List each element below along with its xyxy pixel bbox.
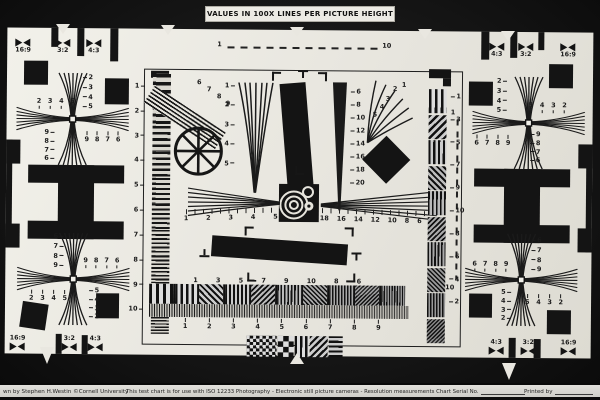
corner-mark — [272, 72, 281, 81]
wedge-cross-tl — [12, 67, 133, 172]
scale-label: 5 — [273, 214, 278, 221]
scale-label: 5 — [224, 160, 234, 167]
crop-bar — [538, 32, 544, 50]
scale-label: 4 — [51, 290, 56, 301]
scale-label: 4 — [251, 214, 256, 221]
aspect-marker-4-3-bl: 4:3 — [88, 336, 103, 351]
scale-label: 4 — [540, 102, 545, 113]
scale-label: 1 — [402, 82, 407, 89]
scale-label: 2 — [558, 294, 563, 305]
scale-label: 16 — [337, 216, 346, 223]
aspect-marker-16-9-tl: 16:9 — [15, 39, 31, 54]
scale-label: 14 — [354, 216, 363, 223]
crop-bar — [509, 338, 516, 358]
cross-scale: 5432 — [525, 294, 563, 305]
scale-label: 2 — [501, 315, 511, 322]
scale-label: 7 — [485, 135, 490, 146]
scale-label: 8 — [405, 218, 410, 225]
aspect-arrow-icon — [62, 343, 77, 351]
serial-number-line — [481, 389, 525, 395]
cross-scale: 6789 — [474, 135, 510, 146]
scale-label: 20 — [350, 180, 365, 187]
cross-scale: 2345 — [83, 74, 93, 110]
aspect-marker-4-3-tl: 4:3 — [86, 39, 101, 54]
scale-label: 1 — [183, 318, 188, 329]
cross-scale: 5432 — [89, 287, 99, 320]
scale-label: 2 — [207, 318, 212, 329]
cross-scale: 5432 — [497, 289, 511, 322]
crop-bar — [481, 32, 489, 60]
scale-label: 4 — [501, 298, 511, 305]
corner-mark — [295, 166, 304, 175]
scale-label: 3 — [83, 84, 93, 91]
aspect-marker-16-9-bl: 16:9 — [10, 335, 26, 350]
sweep-bottom-scale: 123456789 — [183, 318, 381, 331]
scale-label: 3 — [231, 318, 236, 329]
scale-label: 6 — [115, 257, 120, 268]
scale-label: 6 — [417, 218, 422, 225]
aspect-label: 3:2 — [57, 48, 68, 54]
cross-scale: 9876 — [530, 131, 540, 164]
scale-label: 16 — [350, 154, 365, 161]
scale-label: 6 — [474, 135, 479, 146]
crop-bar — [56, 334, 62, 354]
border-triangle-icon — [418, 29, 432, 39]
border-triangle-icon — [40, 347, 54, 364]
aspect-label: 4:3 — [90, 336, 101, 342]
aspect-arrow-icon — [88, 343, 103, 351]
scale-label: 6 — [304, 319, 309, 330]
scale-label: 9 — [53, 262, 63, 269]
scale-label: 4 — [59, 98, 64, 109]
t-mark — [199, 249, 209, 257]
crop-bar — [110, 28, 118, 61]
scale-label: 7 — [44, 146, 54, 153]
aspect-arrow-icon — [86, 39, 101, 47]
footer-strip: wn by Stephen H.Westin ©Cornell Universi… — [0, 383, 600, 397]
scale-label: 3 — [497, 88, 507, 95]
cross-scale: 2345 — [29, 290, 67, 301]
cross-scale: 2345 — [493, 78, 507, 114]
scale-label: 6 — [134, 207, 144, 214]
scale-label: 9 — [44, 129, 54, 136]
wagon-wheel-target — [172, 125, 224, 177]
scale-label: 7 — [207, 86, 212, 93]
aspect-label: 16:9 — [10, 335, 26, 341]
scale-label: 3 — [501, 306, 511, 313]
scale-label: 3 — [40, 290, 45, 301]
wedge-cross-tr — [468, 70, 589, 175]
border-triangle-icon — [56, 24, 70, 34]
cross-scale: 9876 — [84, 131, 120, 142]
aspect-arrow-icon — [10, 343, 25, 351]
aspect-label: 3:2 — [520, 52, 531, 58]
scale-label: 2 — [135, 107, 145, 114]
left-column-scale: 12345678910 — [125, 82, 145, 312]
title-plate: VALUES IN 100X LINES PER PICTURE HEIGHT — [205, 6, 395, 22]
scale-label: 8 — [493, 261, 498, 272]
scale-label: 10 — [388, 217, 397, 224]
scale-label: 4 — [224, 140, 234, 147]
aspect-label: 3:2 — [523, 340, 534, 346]
aspect-marker-3-2-bl: 3:2 — [62, 336, 77, 351]
column-cap — [443, 78, 451, 86]
aspect-arrow-icon — [518, 43, 533, 51]
scale-label: 8 — [133, 256, 143, 263]
scale-label: 2 — [497, 78, 507, 85]
scale-label: 5 — [134, 182, 144, 189]
scale-label: 3 — [451, 116, 466, 123]
printed-by-line — [555, 389, 593, 395]
scale-label: 5 — [497, 107, 507, 114]
scale-label: 8 — [94, 257, 99, 268]
wedge-scale: 12345 — [218, 82, 235, 166]
border-triangle-icon — [161, 25, 175, 35]
scale-label: 6 — [44, 155, 54, 162]
scale-label: 4 — [497, 97, 507, 104]
cross-scale: 6789 — [472, 261, 508, 272]
corner-mark — [318, 72, 327, 81]
border-triangle-icon — [501, 31, 515, 41]
scale-label: 9 — [504, 261, 509, 272]
scale-label: 2 — [206, 215, 211, 222]
corner-mark — [245, 227, 254, 236]
scale-label: 4 — [89, 296, 99, 303]
scale-label: 6 — [530, 158, 540, 165]
right-block-scale: 13579108642 — [449, 93, 465, 305]
scale-label: 5 — [525, 294, 530, 305]
corner-mark — [345, 227, 354, 236]
fan-burst — [363, 77, 418, 145]
scale-label: 7 — [531, 247, 541, 254]
scale-label: 18 — [350, 167, 365, 174]
column-cap — [429, 69, 451, 78]
aspect-arrow-icon — [16, 39, 31, 47]
scale-label: 5 — [529, 102, 534, 113]
scale-label: 6 — [472, 261, 477, 272]
scale-label: 3 — [386, 96, 391, 103]
aspect-marker-16-9-tr: 16:9 — [560, 43, 576, 58]
scale-label: 2 — [89, 314, 99, 321]
scale-label: 7 — [53, 243, 63, 250]
scale-label: 8 — [53, 253, 63, 260]
right-block-column — [427, 89, 447, 344]
scale-label: 3 — [551, 102, 556, 113]
aspect-arrow-icon — [561, 348, 576, 356]
scale-label: 2 — [29, 290, 34, 301]
scale-label: 2 — [225, 102, 235, 109]
scale-label: 9 — [83, 257, 88, 268]
t-mark — [298, 70, 308, 78]
scale-label: 7 — [104, 257, 109, 268]
scale-label: 8 — [95, 131, 100, 142]
scale-label: 4 — [255, 319, 260, 330]
scale-label: 4 — [380, 104, 385, 111]
t-mark — [351, 252, 361, 260]
aspect-label: 16:9 — [15, 48, 31, 54]
scale-label: 8 — [530, 140, 540, 147]
scale-label: 3 — [225, 121, 235, 128]
scale-label: 5 — [63, 290, 68, 301]
scale-label: 2 — [449, 299, 464, 306]
scale-label: 3 — [134, 132, 144, 139]
scale-label: 6 — [532, 237, 542, 244]
scale-label: 5 — [501, 289, 511, 296]
scale-label: 5 — [83, 104, 93, 111]
aspect-marker-16-9-br: 16:9 — [561, 340, 577, 355]
scale-label: 2 — [562, 102, 567, 113]
scale-label: 10 — [450, 207, 465, 214]
ruler-label: 10 — [382, 43, 391, 50]
scale-label: 1 — [225, 82, 235, 89]
scale-label: 9 — [506, 135, 511, 146]
cross-scale: 9876 — [40, 129, 54, 162]
scale-label: 9 — [133, 281, 143, 288]
scale-label: 5 — [450, 139, 465, 146]
scale-label: 6 — [116, 131, 121, 142]
aspect-label: 16:9 — [561, 340, 577, 346]
scale-label: 5 — [279, 319, 284, 330]
scale-label: 5 — [89, 287, 99, 294]
aspect-arrow-icon — [561, 43, 576, 51]
footer-usage: This test chart is for use with ISO 1223… — [126, 389, 479, 395]
scale-label: 8 — [352, 319, 357, 330]
scale-label: 1 — [451, 93, 466, 100]
burst-band — [149, 284, 409, 306]
chart-title: VALUES IN 100X LINES PER PICTURE HEIGHT — [207, 10, 393, 18]
aspect-label: 4:3 — [491, 52, 502, 58]
scale-label: 7 — [328, 319, 333, 330]
aspect-label: 4:3 — [88, 48, 99, 54]
crop-bar — [82, 335, 88, 354]
scale-label: 6 — [54, 233, 64, 240]
scale-label: 8 — [531, 257, 541, 264]
aspect-marker-3-2-tr: 3:2 — [518, 43, 533, 58]
scale-label: 8 — [495, 135, 500, 146]
aspect-arrow-icon — [489, 43, 504, 51]
scale-label: 9 — [530, 131, 540, 138]
scale-label: 6 — [449, 253, 464, 260]
cross-scale: 6789 — [531, 237, 541, 273]
scale-label: 10 — [128, 306, 143, 313]
cross-scale: 5432 — [529, 102, 567, 113]
aspect-arrow-icon — [489, 347, 504, 355]
scale-label: 2 — [37, 98, 42, 109]
scale-label: 1 — [184, 215, 189, 222]
scale-label: 9 — [376, 320, 381, 331]
wedge-cross-br — [461, 227, 582, 332]
border-triangle-icon — [502, 363, 516, 380]
aspect-label: 16:9 — [560, 52, 576, 58]
scale-label: 5 — [70, 98, 75, 109]
dashed-ruler-top — [227, 46, 379, 49]
footer-printed-by: Printed by — [524, 389, 553, 395]
scale-label: 1 — [135, 83, 145, 90]
scale-label: 3 — [228, 214, 233, 221]
wedge-cross-bl — [13, 227, 134, 332]
chart-sheet: 16:9 3:2 4:3 4:3 3:2 16:9 16:9 — [5, 27, 594, 358]
scale-label: 9 — [450, 185, 465, 192]
scale-label: 18 — [320, 215, 329, 222]
aspect-label: 4:3 — [491, 340, 502, 346]
scale-label: 6 — [197, 79, 202, 86]
border-triangle-icon — [290, 353, 304, 364]
scale-label: 7 — [105, 131, 110, 142]
scale-label: 7 — [450, 162, 465, 169]
scale-label: 9 — [84, 131, 89, 142]
vertical-wedge-left — [236, 82, 275, 196]
cross-scale: 2345 — [37, 98, 75, 109]
scale-label: 4 — [536, 294, 541, 305]
scale-label: 7 — [483, 261, 488, 272]
scale-label: 4 — [134, 157, 144, 164]
scale-label: 5 — [373, 112, 378, 119]
scale-label: 7 — [134, 232, 144, 239]
scale-label: 2 — [83, 74, 93, 81]
scale-label: 3 — [89, 305, 99, 312]
scale-label: 7 — [530, 149, 540, 156]
scale-label: 3 — [547, 294, 552, 305]
crop-bar — [77, 28, 84, 56]
scale-label: 8 — [450, 230, 465, 237]
zone-plate — [279, 184, 319, 222]
border-triangle-icon — [290, 27, 304, 37]
aspect-marker-4-3-tr: 4:3 — [489, 43, 504, 58]
scale-label: 4 — [449, 276, 464, 283]
ruler-label: 1 — [217, 41, 222, 48]
scale-label: 2 — [393, 86, 398, 93]
crop-bar — [534, 339, 541, 358]
fine-sweep-band — [149, 304, 409, 319]
cross-scale: 9876 — [83, 257, 119, 268]
scale-label: 9 — [531, 267, 541, 274]
footer-credit: wn by Stephen H.Westin ©Cornell Universi… — [3, 389, 128, 395]
scale-label: 8 — [44, 138, 54, 145]
aspect-marker-4-3-br: 4:3 — [489, 340, 504, 355]
iso12233-test-chart-photo: VALUES IN 100X LINES PER PICTURE HEIGHT … — [0, 0, 600, 400]
aspect-label: 3:2 — [64, 336, 75, 342]
cross-scale: 6789 — [49, 233, 63, 269]
scale-label: 12 — [371, 217, 380, 224]
scale-label: 4 — [83, 94, 93, 101]
scale-label: 3 — [48, 98, 53, 109]
